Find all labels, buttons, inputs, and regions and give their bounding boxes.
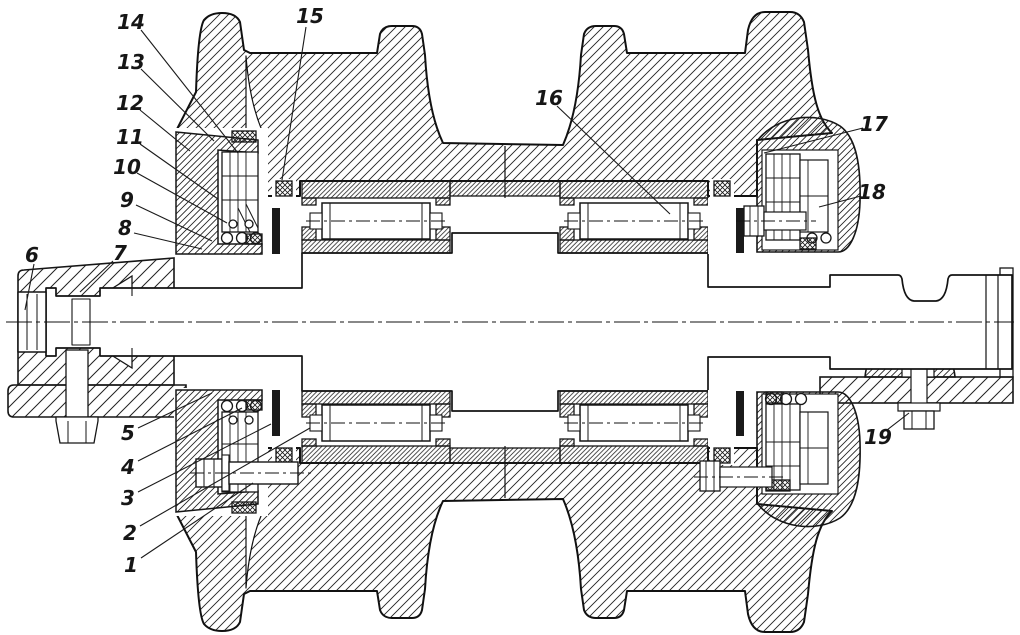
left-vertical-bolt-head	[56, 417, 98, 443]
callout-number-1: 1	[124, 553, 138, 577]
felt-ring	[232, 502, 256, 513]
callout-number-13: 13	[117, 50, 145, 74]
bearing-inner-ring	[560, 240, 708, 253]
seal-spring	[821, 233, 831, 243]
callout-number-2: 2	[123, 521, 137, 545]
callout-number-12: 12	[116, 91, 144, 115]
callout-number-19: 19	[864, 425, 892, 449]
o-ring	[714, 181, 730, 196]
seal-sleeve-dark	[736, 208, 744, 253]
outer-ring-spacer-lower	[450, 448, 560, 463]
bearing-outer-ring-flange	[694, 198, 708, 205]
callout-number-15: 15	[296, 4, 324, 28]
bearing-inner-ring	[302, 240, 450, 253]
callout-number-9: 9	[120, 188, 134, 212]
o-ring	[276, 181, 292, 196]
bearing-inner-ring	[560, 391, 708, 404]
bearing-outer-ring	[560, 446, 708, 463]
cap-bolt-shank	[229, 462, 298, 484]
callout-number-7: 7	[113, 241, 127, 265]
cap-bolt-head	[700, 461, 720, 491]
seal-spring	[796, 394, 807, 405]
seal-spring	[245, 416, 253, 424]
rubber-seal-ring	[246, 400, 262, 410]
bearing-outer-ring-flange	[560, 439, 574, 446]
bearing-outer-ring-flange	[694, 439, 708, 446]
seal-sleeve-dark	[272, 208, 280, 254]
callout-number-3: 3	[121, 486, 135, 510]
roller-sectional-drawing: 12345678910111213141516171819	[0, 0, 1020, 635]
callout-number-5: 5	[121, 421, 135, 445]
bearing-outer-ring-flange	[302, 439, 316, 446]
bearing-inner-ring	[302, 391, 450, 404]
callout-number-17: 17	[860, 112, 888, 136]
callout-number-14: 14	[117, 10, 145, 34]
rubber-seal-ring	[766, 392, 782, 403]
bearing-outer-ring	[302, 181, 450, 198]
seal-spring	[229, 220, 237, 228]
callout-number-18: 18	[858, 180, 886, 204]
left-bracket-plate	[8, 385, 186, 417]
left-vertical-bolt-shank	[66, 350, 88, 417]
bolt-19-washer	[898, 403, 940, 411]
bearing-outer-ring-flange	[436, 198, 450, 205]
callout-number-11: 11	[116, 125, 144, 149]
callout-number-16: 16	[535, 86, 563, 110]
seal-sleeve-dark	[736, 391, 744, 436]
o-ring	[276, 448, 292, 463]
bearing-outer-ring-flange	[302, 198, 316, 205]
technical-drawing-page: 12345678910111213141516171819	[0, 0, 1020, 635]
outer-ring-spacer-upper	[450, 181, 560, 196]
callout-number-6: 6	[25, 243, 39, 267]
bearing-outer-ring-flange	[436, 439, 450, 446]
rubber-seal-ring	[800, 238, 816, 249]
callout-number-4: 4	[120, 455, 135, 479]
felt-ring	[232, 131, 256, 142]
seal-spring	[245, 220, 253, 228]
bearing-outer-ring	[302, 446, 450, 463]
bearing-outer-ring-flange	[560, 198, 574, 205]
seal-spring	[229, 416, 237, 424]
callout-number-8: 8	[118, 216, 132, 240]
seal-spring	[222, 401, 233, 412]
seal-sleeve-dark	[272, 390, 280, 436]
roller-body-upper-half	[176, 12, 832, 196]
seal-ring-pack	[222, 152, 258, 232]
bearing-outer-ring	[560, 181, 708, 198]
callout-number-10: 10	[113, 155, 141, 179]
seal-spring	[222, 233, 233, 244]
rubber-seal-ring	[246, 234, 262, 244]
